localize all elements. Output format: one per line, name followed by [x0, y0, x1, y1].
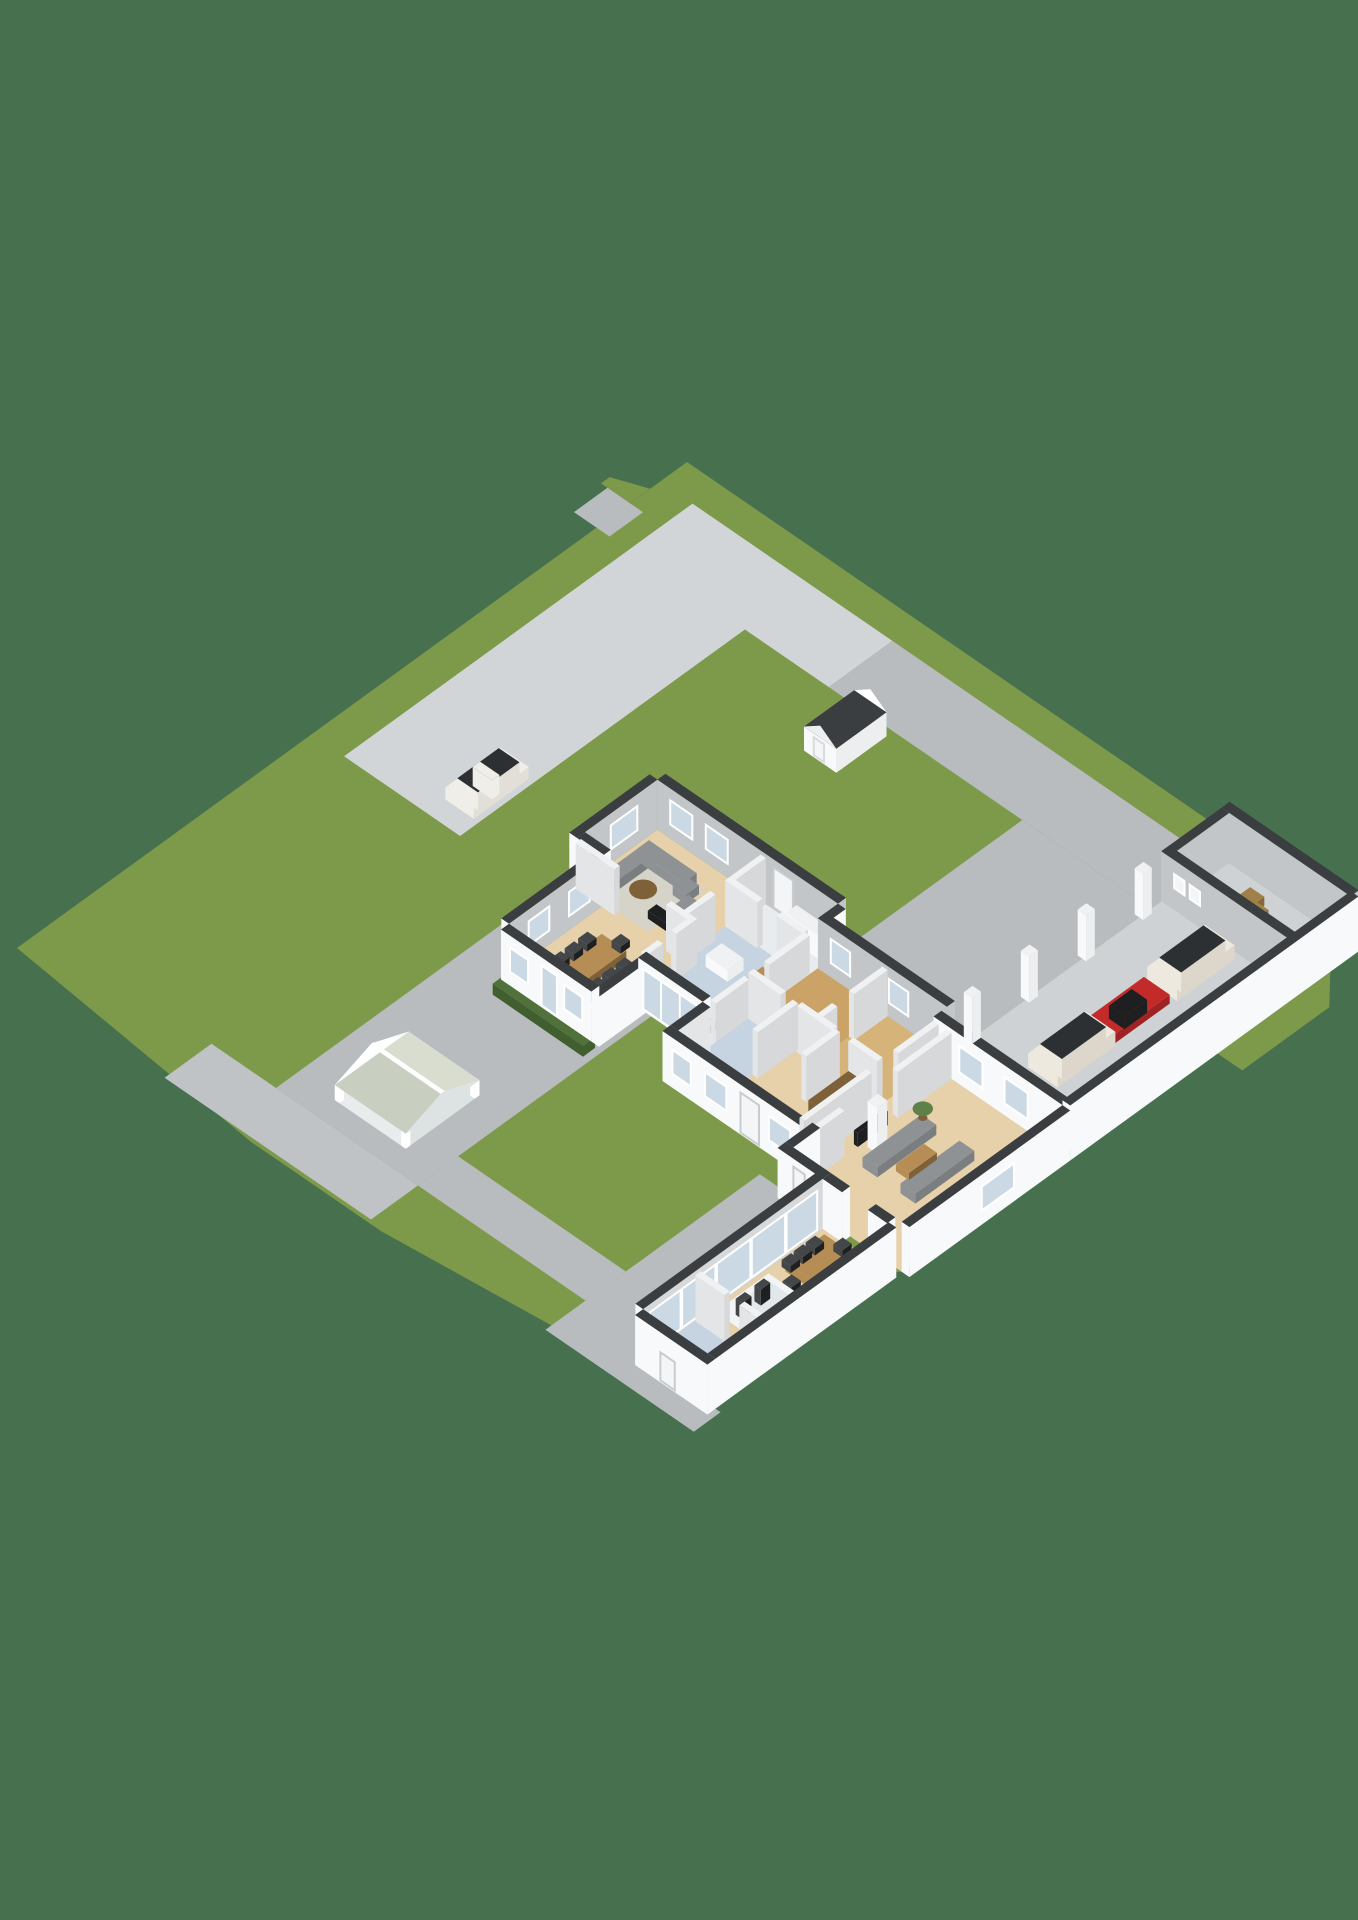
- int-wall-hall-kitchen-a-face: [757, 899, 762, 949]
- wall-lower-se-face: [902, 1222, 910, 1277]
- carport-pillars-4-face: [972, 992, 981, 1044]
- int-wall-lower-nw-a-face: [893, 1068, 898, 1118]
- int-wall-bath-face: [753, 1029, 758, 1079]
- int-wall-store-face: [801, 1053, 806, 1103]
- plant: [913, 1101, 933, 1116]
- floorplan-3d-render: [0, 0, 1358, 1920]
- carport-pillars-3-face: [1021, 951, 1029, 1003]
- lower-pillars-1-face: [868, 1101, 878, 1154]
- lower-tv-face: [854, 1130, 858, 1147]
- carport-pillars-4-face: [964, 992, 972, 1044]
- kitchen-door-mullion-1: [660, 981, 662, 1022]
- annex-mullion-2: [749, 1238, 753, 1280]
- carport-pillars-1-face: [1143, 868, 1152, 920]
- wall-annex-sw-face: [707, 1359, 715, 1415]
- floorplan-stage: [0, 0, 1358, 1920]
- carport-pillars-2-face: [1078, 910, 1086, 962]
- carport-pillars-3-face: [1029, 950, 1038, 1002]
- wall-annex-ne-a-face: [842, 1186, 850, 1242]
- page-background: { "canvas": {"width": 1358, "height": 19…: [0, 0, 1358, 1920]
- int-wall-living-dining-a-face: [614, 866, 619, 916]
- annex-mullion-4: [680, 1288, 684, 1330]
- int-wall-mid-v-a-face: [849, 991, 854, 1041]
- greenhouse-posts-4-face: [335, 1085, 340, 1103]
- living-coffee-table: [629, 880, 657, 900]
- wall-dining-sw-face: [591, 986, 599, 1042]
- greenhouse-posts-3-face: [401, 1131, 406, 1149]
- int-wall-kitchen-bed-b-face: [711, 1000, 716, 1050]
- int-wall-annex-bath-a-face: [724, 1291, 729, 1341]
- carport-pillars-1-face: [1135, 868, 1143, 920]
- carport-pillars-2-face: [1086, 909, 1095, 961]
- annex-mullion-1: [784, 1212, 788, 1254]
